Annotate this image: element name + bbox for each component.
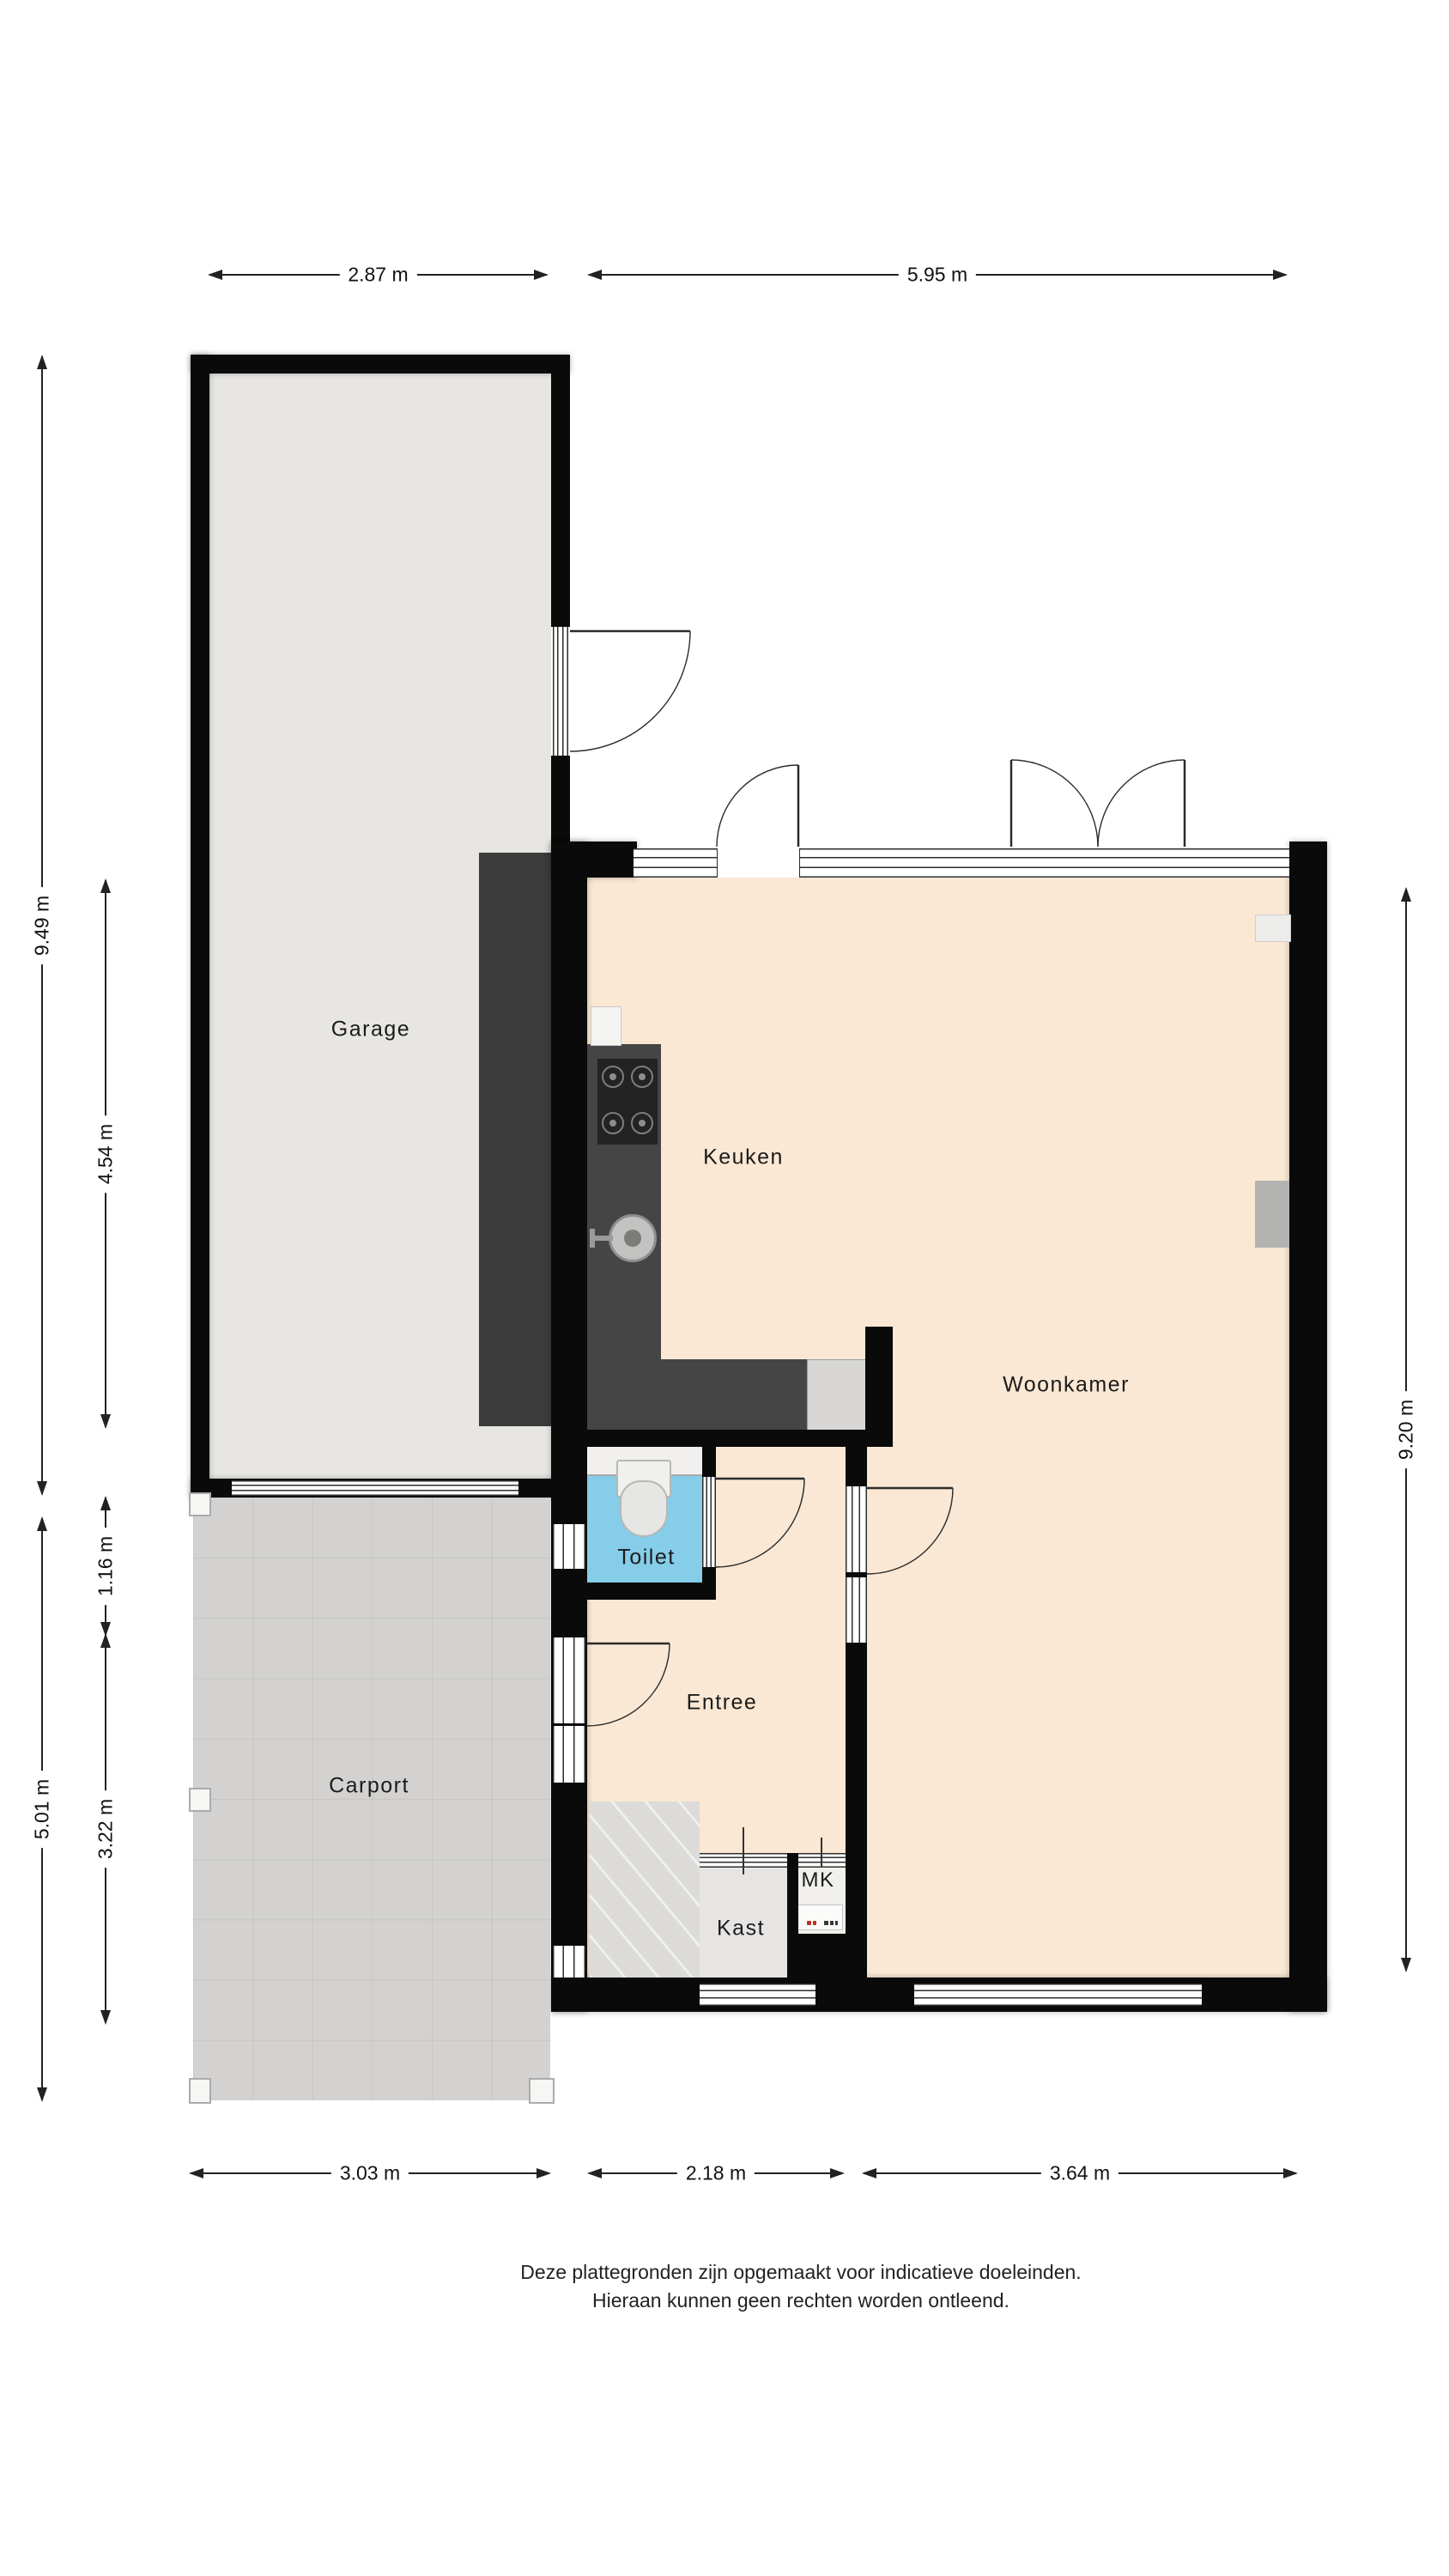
toilet-bowl-icon bbox=[620, 1480, 668, 1537]
mk-left-wall bbox=[787, 1853, 798, 1941]
carport-post bbox=[189, 2078, 211, 2104]
arrow-up-icon bbox=[100, 878, 111, 893]
dim-label: 9.20 m bbox=[1395, 1391, 1418, 1468]
kast-corner-window bbox=[553, 1946, 585, 1978]
faucet-handle-icon bbox=[590, 1229, 595, 1248]
arrow-right-icon bbox=[534, 270, 549, 280]
dim-top-garage: 2.87 m bbox=[209, 274, 547, 276]
garage-workbench bbox=[479, 853, 551, 1426]
faucet-icon bbox=[592, 1236, 613, 1241]
arrow-down-icon bbox=[37, 1481, 47, 1496]
radiator-top bbox=[1255, 914, 1291, 942]
dim-bottom-entree: 2.18 m bbox=[589, 2172, 843, 2174]
dim-top-house: 5.95 m bbox=[589, 274, 1286, 276]
garage-side-door-arc bbox=[570, 631, 690, 751]
room-label-carport: Carport bbox=[329, 1774, 409, 1799]
arrow-up-icon bbox=[37, 355, 47, 369]
stove-burner-icon bbox=[631, 1112, 653, 1134]
stove-burner-icon bbox=[602, 1066, 624, 1088]
top-door-arc bbox=[717, 765, 798, 847]
arrow-down-icon bbox=[1401, 1958, 1411, 1972]
dim-label: 3.22 m bbox=[94, 1790, 118, 1868]
woonkamer-bottom-window bbox=[914, 1984, 1202, 2006]
partition-tick bbox=[821, 1838, 822, 1868]
radiator-bottom bbox=[1255, 1181, 1289, 1248]
arrow-right-icon bbox=[537, 2168, 551, 2178]
kitchen-peninsula-wall bbox=[865, 1327, 893, 1447]
arrow-left-icon bbox=[587, 270, 602, 280]
arrow-up-icon bbox=[37, 1516, 47, 1531]
dim-left-toilet-zone: 1.16 m bbox=[105, 1498, 106, 1635]
garage-wall-right-lower bbox=[551, 756, 570, 841]
kitchen-wall-appliance bbox=[591, 1006, 621, 1046]
toilet-window bbox=[553, 1524, 585, 1569]
dim-bottom-woonkamer: 3.64 m bbox=[864, 2172, 1296, 2174]
floorplan-canvas: Garage Keuken Toilet Entree bbox=[0, 0, 1449, 2576]
dim-right-woonkamer: 9.20 m bbox=[1405, 889, 1407, 1971]
disclaimer: Deze plattegronden zijn opgemaakt voor i… bbox=[200, 2258, 1402, 2315]
stove-burner-icon bbox=[631, 1066, 653, 1088]
room-label-woonkamer: Woonkamer bbox=[1003, 1373, 1130, 1398]
arrow-left-icon bbox=[208, 270, 222, 280]
stove-burner-icon bbox=[602, 1112, 624, 1134]
kast-wardrobe bbox=[590, 1801, 700, 1978]
interior-door-frame bbox=[846, 1486, 867, 1572]
carport-floor bbox=[193, 1498, 550, 2100]
dim-label: 9.49 m bbox=[31, 886, 54, 963]
entree-bottom-window bbox=[700, 1984, 815, 2006]
dishwasher bbox=[807, 1359, 869, 1431]
partition-tick bbox=[743, 1827, 744, 1874]
toilet-door-frame bbox=[702, 1477, 716, 1567]
arrow-left-icon bbox=[862, 2168, 876, 2178]
carport-post bbox=[189, 1492, 211, 1516]
arrow-down-icon bbox=[100, 2010, 111, 2025]
dim-left-carport: 5.01 m bbox=[41, 1518, 43, 2100]
dim-label: 4.54 m bbox=[94, 1115, 118, 1192]
arrow-left-icon bbox=[587, 2168, 602, 2178]
arrow-right-icon bbox=[830, 2168, 845, 2178]
dim-label: 2.18 m bbox=[677, 2162, 755, 2185]
toilet-bottom-wall bbox=[551, 1583, 716, 1600]
disclaimer-line2: Hieraan kunnen geen rechten worden ontle… bbox=[200, 2287, 1402, 2315]
room-label-garage: Garage bbox=[331, 1018, 410, 1042]
double-door-left-arc bbox=[1011, 760, 1098, 847]
dim-label: 3.64 m bbox=[1041, 2162, 1119, 2185]
kitchen-bottom-wall bbox=[551, 1430, 893, 1447]
room-label-mk: MK bbox=[802, 1868, 835, 1893]
sink-drain-icon bbox=[624, 1230, 641, 1247]
room-label-kast: Kast bbox=[717, 1917, 765, 1941]
entree-sidelight-window bbox=[553, 1726, 585, 1783]
kitchen-counter-horizontal bbox=[587, 1359, 807, 1430]
double-door-right-arc bbox=[1098, 760, 1185, 847]
garage-side-door-frame bbox=[553, 627, 568, 756]
garage-wall-right-upper bbox=[551, 355, 570, 627]
arrow-up-icon bbox=[100, 1633, 111, 1648]
dim-left-entree-zone: 3.22 m bbox=[105, 1635, 106, 2023]
front-top-door-opening bbox=[717, 848, 800, 878]
dim-label: 5.01 m bbox=[31, 1771, 54, 1848]
house-wall-left bbox=[551, 841, 587, 2012]
house-wall-right bbox=[1289, 841, 1327, 2012]
carport-post bbox=[529, 2078, 555, 2104]
arrow-down-icon bbox=[100, 1414, 111, 1429]
room-label-entree: Entree bbox=[687, 1691, 758, 1716]
dim-label: 5.95 m bbox=[899, 264, 976, 287]
arrow-down-icon bbox=[37, 2087, 47, 2102]
entree-front-door-frame bbox=[553, 1637, 585, 1723]
garage-wall-top bbox=[191, 355, 570, 374]
arrow-left-icon bbox=[189, 2168, 203, 2178]
disclaimer-line1: Deze plattegronden zijn opgemaakt voor i… bbox=[200, 2258, 1402, 2287]
dim-label: 3.03 m bbox=[331, 2162, 409, 2185]
room-label-toilet: Toilet bbox=[617, 1546, 675, 1571]
arrow-right-icon bbox=[1283, 2168, 1298, 2178]
dim-left-garage: 9.49 m bbox=[41, 356, 43, 1494]
dim-bottom-carport: 3.03 m bbox=[191, 2172, 549, 2174]
arrow-up-icon bbox=[1401, 887, 1411, 902]
arrow-up-icon bbox=[100, 1496, 111, 1510]
dim-label: 1.16 m bbox=[94, 1528, 118, 1605]
room-label-keuken: Keuken bbox=[703, 1145, 784, 1170]
garage-wall-left bbox=[191, 355, 209, 1498]
stove-icon bbox=[597, 1059, 658, 1145]
meter-box-icon bbox=[797, 1905, 843, 1930]
dim-label: 2.87 m bbox=[339, 264, 416, 287]
arrow-right-icon bbox=[1273, 270, 1288, 280]
carport-post bbox=[189, 1788, 211, 1812]
dim-left-keuken: 4.54 m bbox=[105, 880, 106, 1427]
kast-partition-window bbox=[700, 1853, 846, 1868]
interior-sidelight-window bbox=[846, 1577, 867, 1643]
garage-bottom-window bbox=[232, 1480, 518, 1496]
